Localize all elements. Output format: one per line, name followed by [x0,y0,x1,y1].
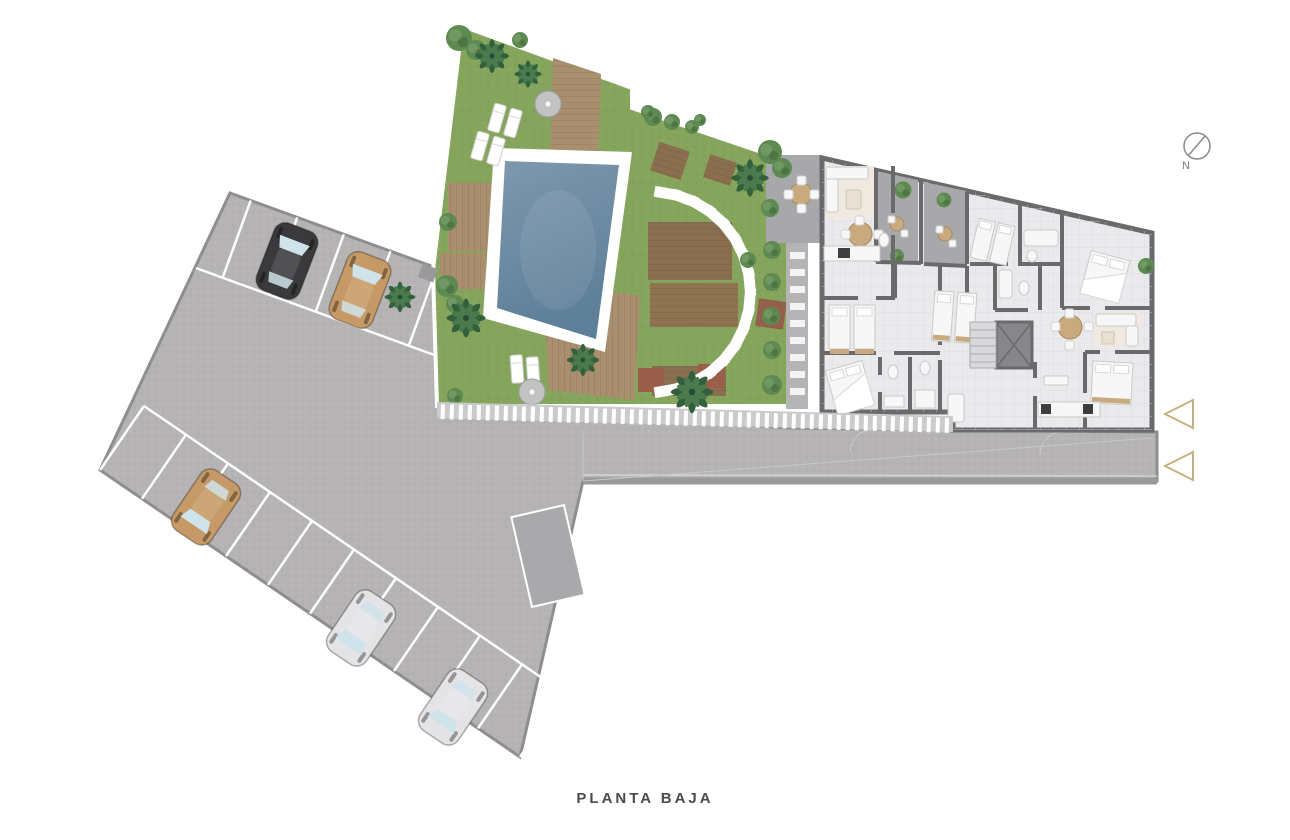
apartment-building [822,158,1154,430]
sink-counter [884,396,904,407]
curb-line [583,475,1157,476]
compass-needle [1188,136,1205,156]
kitchen-counter [824,246,880,261]
parasol [535,91,561,117]
parasol [519,379,545,405]
bedroom-double-right-bottom [1091,361,1133,405]
entrance-markers [1165,400,1193,480]
north-compass: N [1182,133,1210,172]
toilet [888,365,898,379]
shower [915,390,935,408]
stove [838,248,850,258]
bathtub [999,270,1012,298]
north-label: N [1182,160,1190,172]
indoor-plant [1138,258,1154,274]
sofa [826,167,868,179]
sofa [1096,314,1136,326]
dining-table [848,222,872,246]
plan-title: PLANTA BAJA [576,790,713,807]
toilet [879,233,889,247]
garden-area [418,25,822,409]
entrance-triangle [1165,400,1193,428]
elevator [996,322,1032,368]
stairs [970,322,996,368]
dining-table [1058,315,1082,339]
coffee-table [846,190,861,209]
site-plan: N PLANTA BAJA [0,0,1290,840]
path-stepping-stones [790,252,805,395]
bathtub [1024,230,1058,246]
entrance-triangle [1165,452,1193,480]
